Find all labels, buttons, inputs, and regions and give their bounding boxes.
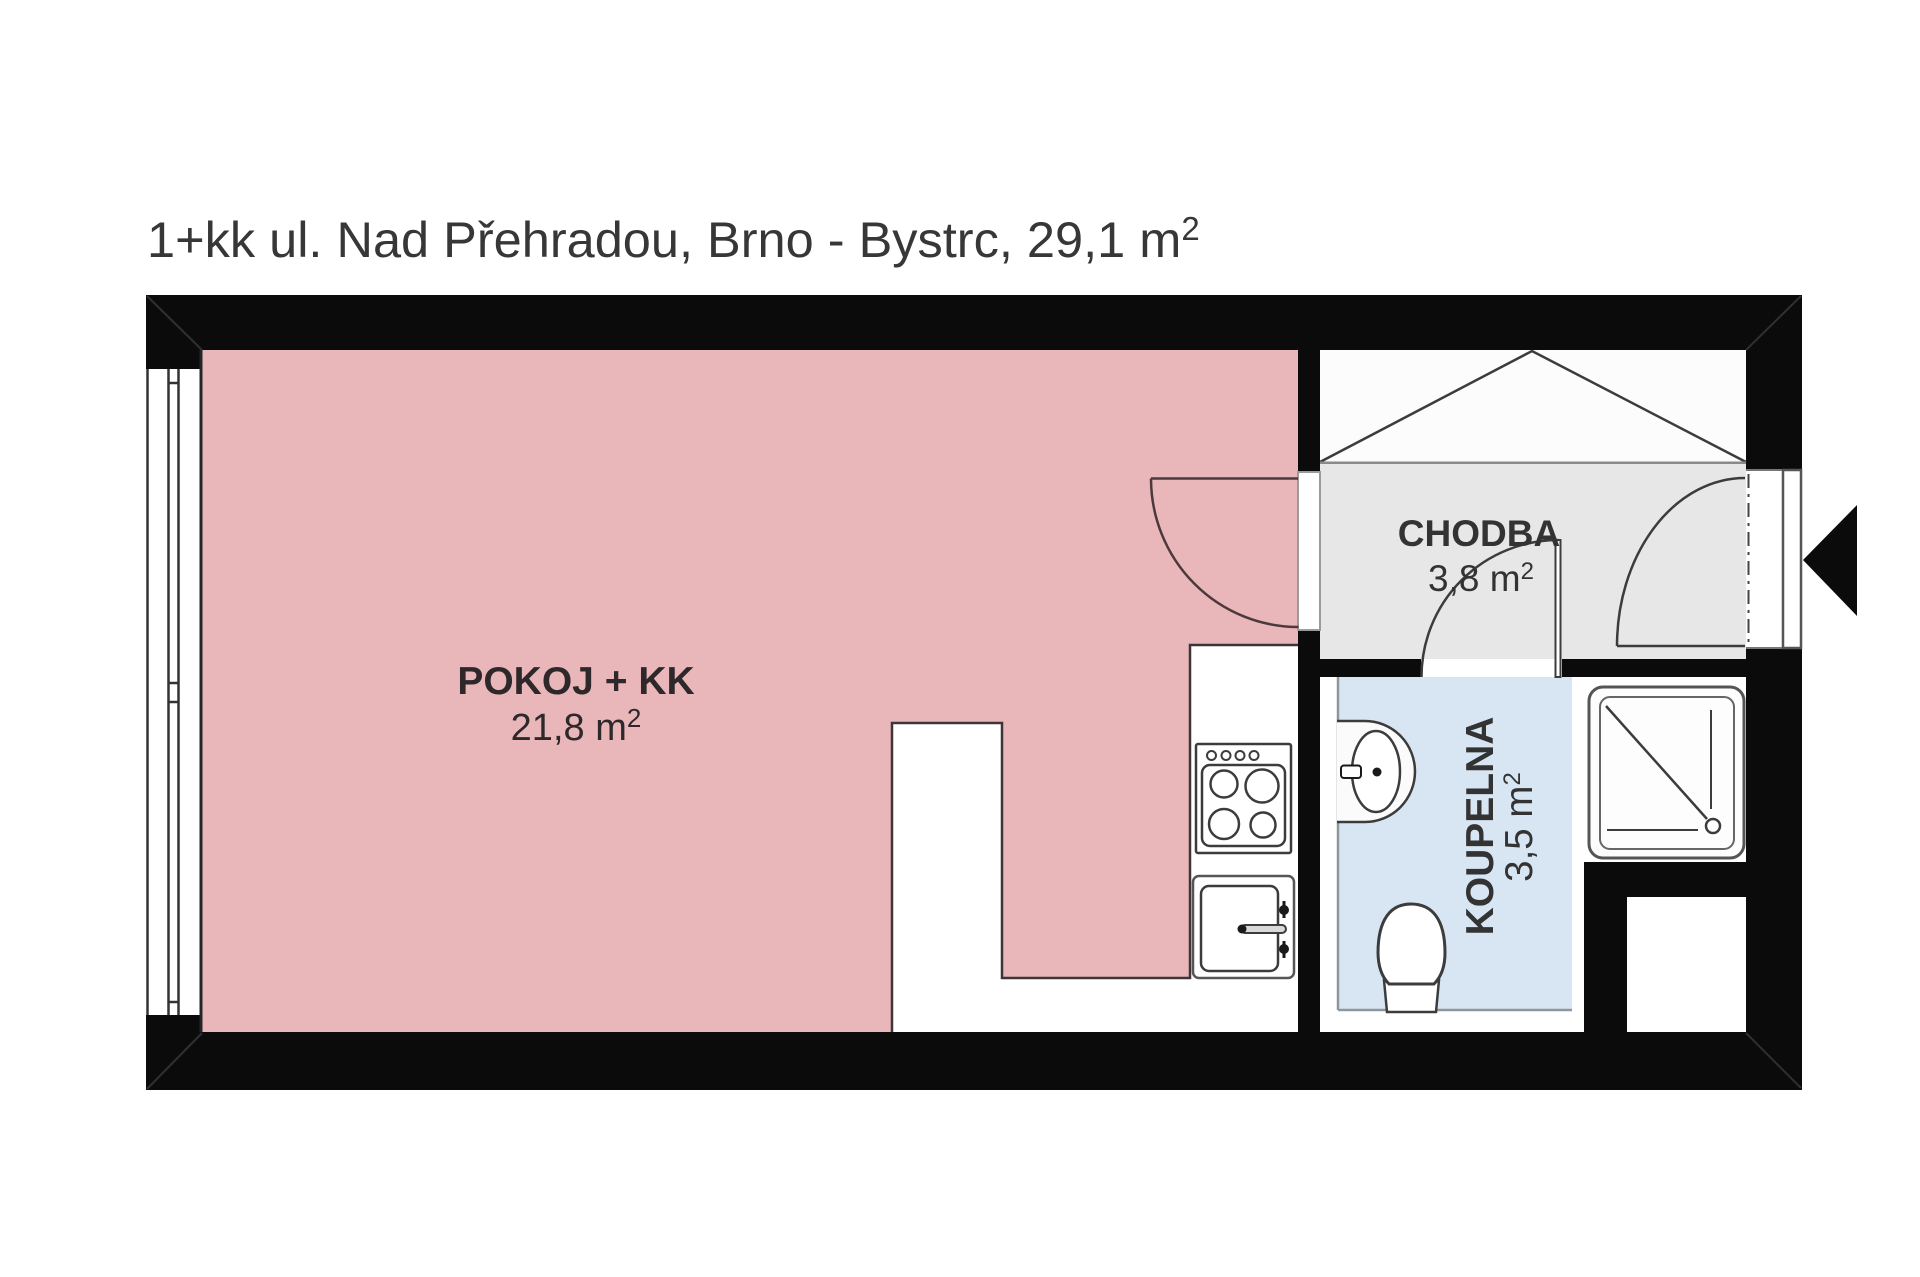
svg-text:POKOJ + KK: POKOJ + KK [457,660,694,703]
svg-text:21,8 m2: 21,8 m2 [511,703,642,749]
svg-text:1+kk ul. Nad Přehradou, Brno -: 1+kk ul. Nad Přehradou, Brno - Bystrc, 2… [147,210,1200,268]
svg-text:3,8 m2: 3,8 m2 [1428,558,1534,599]
svg-text:CHODBA: CHODBA [1398,513,1560,554]
svg-text:KOUPELNA: KOUPELNA [1459,717,1502,936]
svg-text:3,5 m2: 3,5 m2 [1498,772,1541,882]
